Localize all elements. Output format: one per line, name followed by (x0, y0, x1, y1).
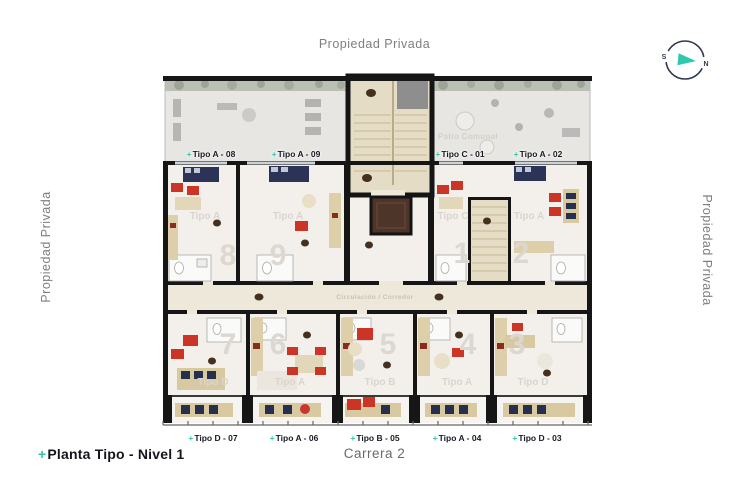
unit-tag-label: Tipo C - 01 (441, 149, 484, 159)
unit-type-watermark: Tipo D (518, 377, 549, 388)
unit-number-watermark: 4 (460, 328, 477, 361)
compass-north-label: N (703, 61, 708, 68)
compass-needle (677, 53, 696, 67)
unit-type-watermark: Tipo B (365, 377, 396, 388)
unit-number-watermark: 1 (454, 237, 471, 270)
unit-type-watermark: Tipo C (438, 211, 469, 222)
floorplan-drawing: Patio Comunal Circulación / Corredor Tip… (157, 73, 595, 430)
unit-tag-label: Tipo D - 07 (194, 433, 237, 443)
unit-number-watermark: 8 (220, 239, 237, 272)
unit-tag-tipo-d-03: +Tipo D - 03 (512, 433, 561, 443)
top-boundary-label: Propiedad Privada (0, 37, 749, 51)
unit-type-watermark: Tipo A (190, 211, 221, 222)
unit-type-watermark: Tipo A (273, 211, 304, 222)
plus-marker: + (512, 433, 517, 443)
left-boundary-label: Propiedad Privada (39, 191, 53, 302)
street-label: Carrera 2 (0, 446, 749, 461)
main-stair-core (348, 76, 432, 197)
unit-tag-label: Tipo A - 06 (276, 433, 319, 443)
unit-number-watermark: 9 (270, 239, 287, 272)
unit-number-watermark: 6 (270, 328, 287, 361)
unit-tag-tipo-c-01: +Tipo C - 01 (435, 149, 484, 159)
unit-tag-tipo-d-07: +Tipo D - 07 (188, 433, 237, 443)
unit-tag-tipo-a-02: +Tipo A - 02 (514, 149, 563, 159)
plus-marker: + (270, 433, 275, 443)
plus-marker: + (514, 149, 519, 159)
corridor-label: Circulación / Corredor (336, 294, 413, 301)
unit-tag-label: Tipo D - 03 (518, 433, 561, 443)
unit-number-watermark: 5 (380, 328, 397, 361)
unit-type-watermark: Tipo D (198, 377, 229, 388)
unit-number-watermark: 3 (509, 328, 526, 361)
plus-marker: + (187, 149, 192, 159)
plus-marker: + (350, 433, 355, 443)
unit-tag-tipo-a-09: +Tipo A - 09 (272, 149, 321, 159)
plus-marker: + (188, 433, 193, 443)
unit-number-watermark: 2 (513, 237, 530, 270)
secondary-stair (468, 197, 511, 285)
unit-tag-tipo-b-05: +Tipo B - 05 (350, 433, 399, 443)
unit-tag-label: Tipo B - 05 (356, 433, 399, 443)
unit-number-watermark: 7 (220, 328, 237, 361)
plus-marker: + (433, 433, 438, 443)
right-boundary-label: Propiedad Privada (700, 194, 714, 305)
unit-tag-label: Tipo A - 08 (193, 149, 236, 159)
floorplan-page: Propiedad Privada Propiedad Privada Prop… (0, 0, 749, 500)
unit-type-watermark: Tipo A (442, 377, 473, 388)
unit-tag-label: Tipo A - 09 (278, 149, 321, 159)
unit-type-watermark: Tipo A (275, 377, 306, 388)
plus-marker: + (435, 149, 440, 159)
plus-marker: + (272, 149, 277, 159)
unit-tag-label: Tipo A - 02 (520, 149, 563, 159)
unit-tag-tipo-a-04: +Tipo A - 04 (433, 433, 482, 443)
patio-label: Patio Comunal (438, 132, 498, 141)
unit-type-watermark: Tipo A (514, 211, 545, 222)
compass-south-label: S (662, 54, 667, 61)
unit-tag-tipo-a-08: +Tipo A - 08 (187, 149, 236, 159)
unit-tag-tipo-a-06: +Tipo A - 06 (270, 433, 319, 443)
unit-tag-label: Tipo A - 04 (439, 433, 482, 443)
compass-icon: S N (655, 30, 715, 90)
elevator-shaft (371, 197, 411, 234)
